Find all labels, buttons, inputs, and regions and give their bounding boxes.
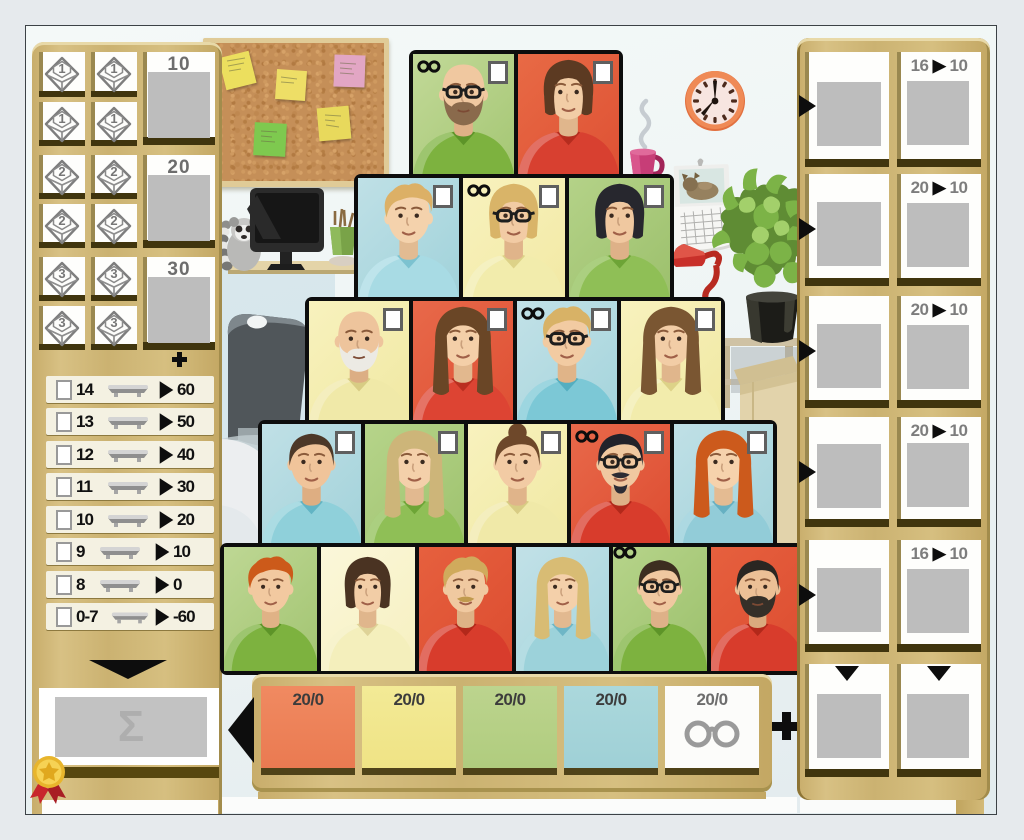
svg-text:2: 2 (58, 213, 65, 228)
svg-text:1: 1 (110, 61, 117, 76)
svg-text:2: 2 (110, 164, 117, 179)
svg-text:3: 3 (110, 315, 117, 330)
svg-text:3: 3 (58, 266, 65, 281)
svg-text:1: 1 (58, 61, 65, 76)
svg-text:2: 2 (58, 164, 65, 179)
svg-text:2: 2 (110, 213, 117, 228)
svg-text:3: 3 (58, 315, 65, 330)
svg-text:3: 3 (110, 266, 117, 281)
svg-text:1: 1 (110, 111, 117, 126)
svg-text:1: 1 (58, 111, 65, 126)
